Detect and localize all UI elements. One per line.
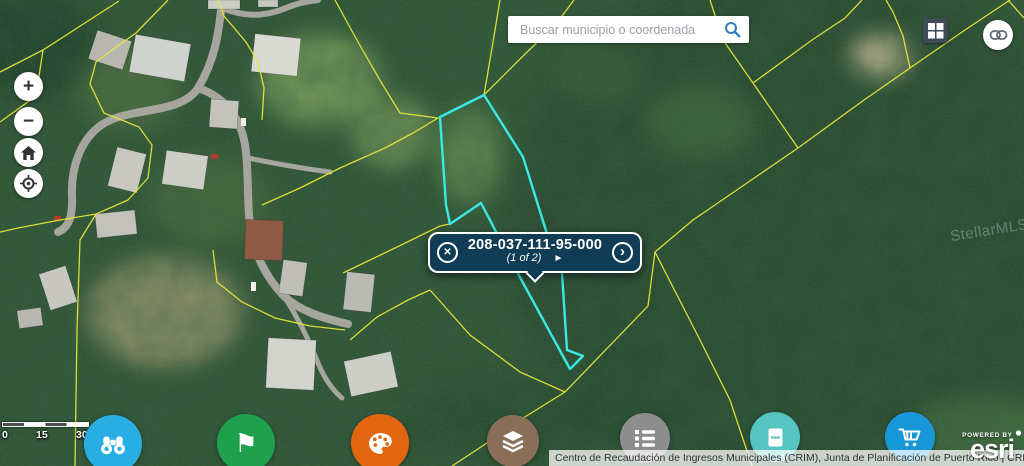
chevron-right-icon: › <box>620 243 625 260</box>
esri-globe-icon <box>1015 430 1022 436</box>
parcel-id: 208-037-111-95-000 <box>430 237 640 253</box>
scale-tick-15: 15 <box>36 429 48 441</box>
zoom-out-button[interactable]: − <box>14 107 43 136</box>
popup-page-indicator: (1 of 2) <box>507 252 542 264</box>
layers-tool-button[interactable] <box>487 415 539 466</box>
locate-button[interactable] <box>14 169 43 198</box>
map-attribution: Centro de Recaudación de Ingresos Munici… <box>549 450 1024 466</box>
popup-close-button[interactable]: ✕ <box>437 242 458 263</box>
list-icon <box>633 427 657 449</box>
share-link-button[interactable] <box>983 20 1013 50</box>
popup-next-button[interactable]: › <box>612 242 633 263</box>
basemap-grid-button[interactable] <box>923 18 948 43</box>
palette-icon <box>367 431 394 456</box>
find-tool-button[interactable] <box>84 415 142 466</box>
scale-bar <box>2 422 89 427</box>
play-icon[interactable]: ► <box>553 253 563 264</box>
search-icon <box>724 21 741 38</box>
parcel-popup: ✕ › 208-037-111-95-000 (1 of 2)► <box>428 232 642 273</box>
flag-tool-button[interactable]: ⚑ <box>217 414 275 466</box>
layers-icon <box>500 429 526 453</box>
flag-icon: ⚑ <box>234 430 257 456</box>
scale-tick-0: 0 <box>2 429 8 441</box>
link-icon <box>989 26 1008 44</box>
esri-logo: POWERED BY esri <box>962 430 1022 461</box>
document-icon <box>764 426 787 449</box>
esri-wordmark: esri <box>962 439 1022 461</box>
close-icon: ✕ <box>443 247 451 258</box>
search-button[interactable] <box>715 16 749 43</box>
search-bar <box>508 16 749 43</box>
zoom-out-icon: − <box>23 111 34 133</box>
grid-icon <box>927 22 944 39</box>
search-input[interactable] <box>508 16 715 43</box>
home-icon <box>21 146 36 160</box>
home-button[interactable] <box>14 138 43 167</box>
map-app-window: StellarMLS + − <box>0 0 1024 466</box>
locate-icon <box>20 175 37 192</box>
cart-icon <box>897 425 923 449</box>
zoom-in-button[interactable]: + <box>14 72 43 101</box>
binoculars-icon <box>99 431 127 457</box>
palette-tool-button[interactable] <box>351 414 409 466</box>
zoom-in-icon: + <box>23 76 34 98</box>
